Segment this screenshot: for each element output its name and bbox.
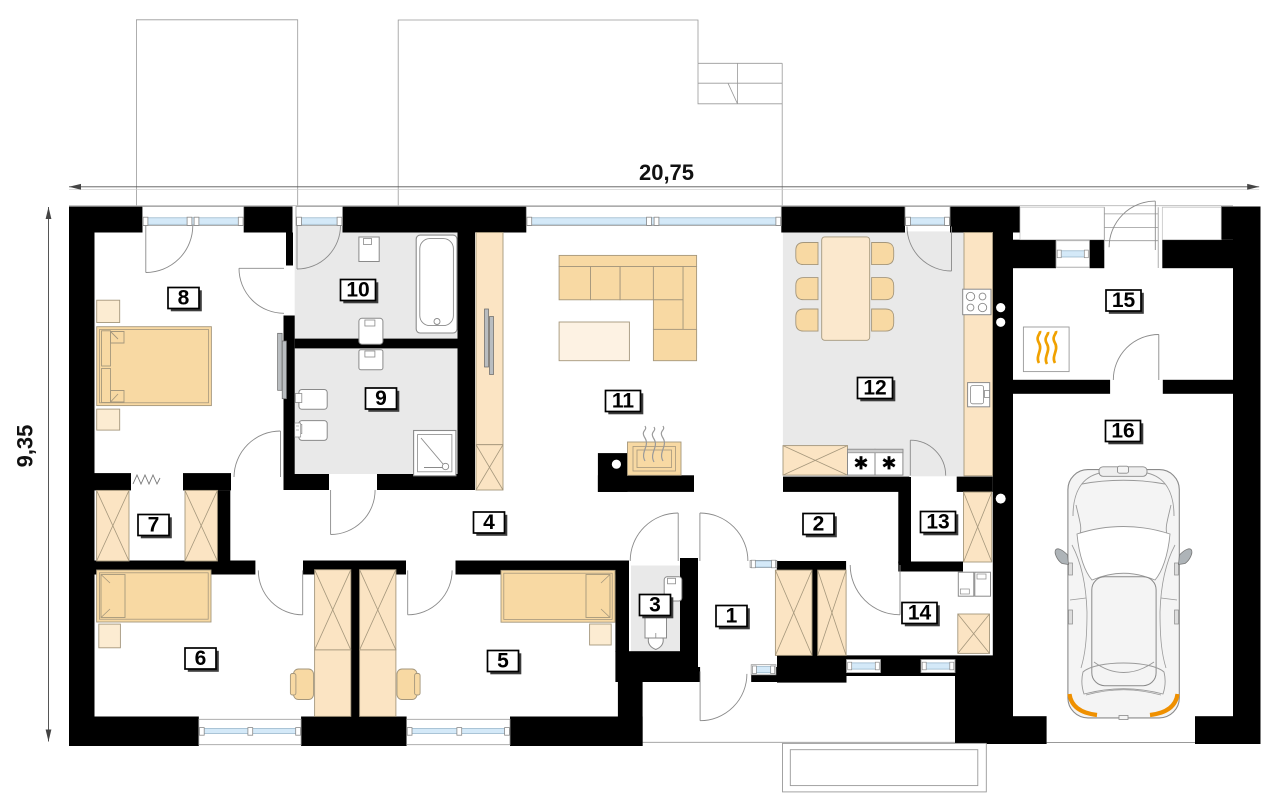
svg-text:7: 7 [148, 513, 160, 536]
svg-text:12: 12 [863, 376, 886, 399]
svg-text:9,35: 9,35 [13, 425, 38, 468]
svg-text:9: 9 [375, 387, 387, 410]
svg-text:13: 13 [926, 510, 949, 533]
svg-text:10: 10 [346, 278, 369, 301]
svg-text:2: 2 [813, 512, 825, 535]
svg-text:3: 3 [649, 593, 661, 616]
svg-text:15: 15 [1112, 289, 1136, 312]
svg-text:11: 11 [612, 389, 635, 412]
svg-text:6: 6 [195, 647, 207, 670]
svg-text:5: 5 [497, 649, 509, 672]
svg-text:4: 4 [483, 511, 495, 534]
svg-text:20,75: 20,75 [639, 160, 694, 185]
svg-text:8: 8 [178, 286, 190, 309]
svg-text:14: 14 [908, 601, 932, 624]
svg-text:16: 16 [1111, 419, 1134, 442]
svg-text:1: 1 [726, 604, 738, 627]
